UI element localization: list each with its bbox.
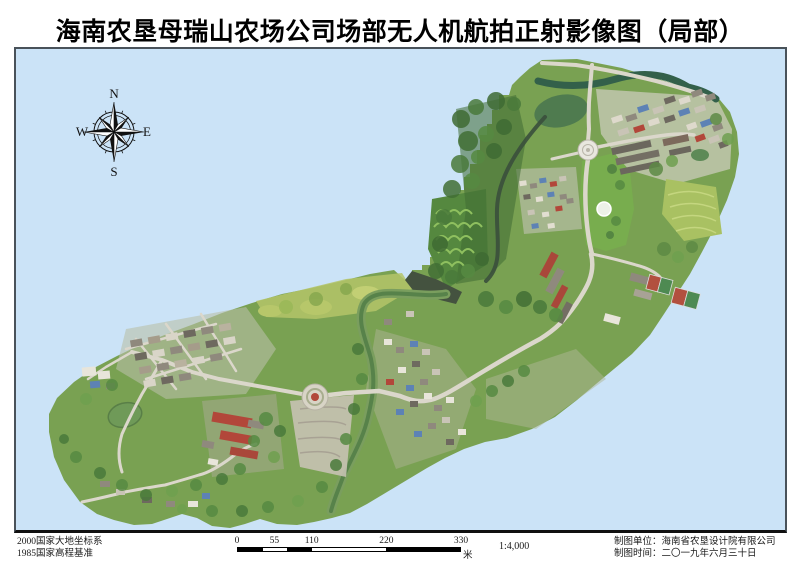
- credits: 制图单位：海南省农垦设计院有限公司制图时间：二〇一九年六月三十日: [614, 537, 776, 560]
- plaza-roundabout: [302, 384, 328, 410]
- orthophoto-footprint: [49, 59, 739, 528]
- east-label: E: [143, 124, 151, 139]
- datum-info: 2000国家大地坐标系1985国家高程基准: [17, 537, 103, 560]
- orthophoto-map: N S W E: [16, 49, 785, 530]
- compass-cardinal-points: [84, 102, 144, 162]
- credits-date: 制图时间：二〇一九年六月三十日: [614, 549, 776, 561]
- west-label: W: [76, 124, 89, 139]
- scale-label-55: 55: [270, 536, 280, 546]
- map-sheet: 海南农垦母瑞山农场公司场部无人机航拍正射影像图（局部）: [0, 0, 800, 565]
- scale-unit: 米: [463, 547, 473, 561]
- credits-agency: 制图单位：海南省农垦设计院有限公司: [614, 537, 776, 549]
- small-green-pond: [691, 149, 709, 161]
- scale-bar: 0 55 110 220 330: [237, 536, 461, 554]
- scale-label-0: 0: [235, 536, 240, 546]
- north-label: N: [109, 86, 119, 101]
- scale-label-330: 330: [454, 536, 468, 546]
- datum-line-1: 2000国家大地坐标系: [17, 537, 103, 549]
- map-frame: N S W E: [14, 47, 787, 533]
- map-footer: 2000国家大地坐标系1985国家高程基准 0 55 110 220 330 米…: [0, 528, 800, 565]
- helipad-circle: [597, 202, 611, 216]
- scale-label-220: 220: [379, 536, 393, 546]
- south-label: S: [110, 164, 117, 179]
- compass-rose: N S W E: [76, 86, 151, 179]
- datum-line-2: 1985国家高程基准: [17, 549, 103, 561]
- scale-bar-segments: [237, 547, 461, 552]
- map-title: 海南农垦母瑞山农场公司场部无人机航拍正射影像图（局部）: [0, 12, 800, 48]
- scale-label-110: 110: [305, 536, 319, 546]
- scale-ratio: 1:4,000: [499, 541, 529, 552]
- scale-bar-labels: 0 55 110 220 330: [237, 536, 461, 546]
- town-roundabout: [578, 140, 598, 160]
